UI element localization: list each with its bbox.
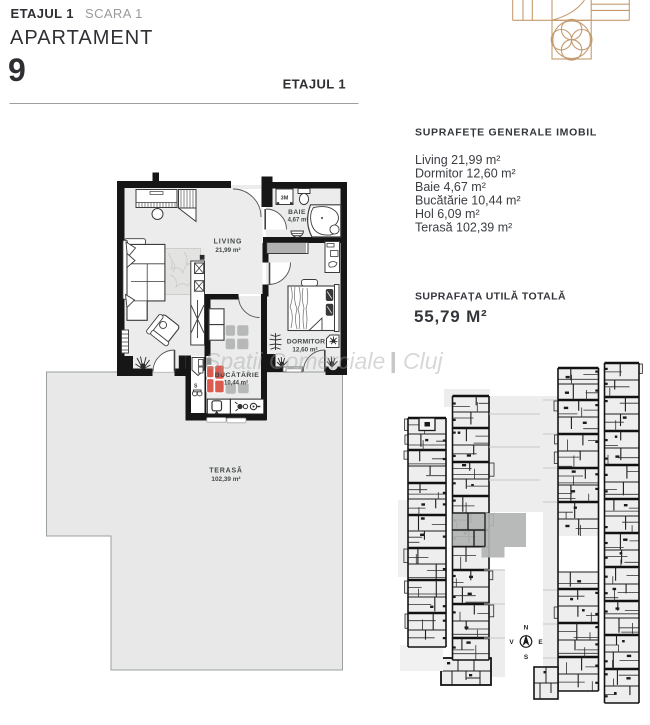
svg-text:Spații Comerciale: Spații Comerciale: [205, 348, 385, 374]
svg-text:ETAJUL 1: ETAJUL 1: [283, 77, 346, 92]
svg-text:SCARA 1: SCARA 1: [85, 6, 143, 21]
svg-text:Hol 6,09 m²: Hol 6,09 m²: [415, 207, 480, 221]
svg-text:9: 9: [8, 52, 26, 88]
svg-text:10,44 m²: 10,44 m²: [224, 379, 248, 386]
svg-text:APARTAMENT: APARTAMENT: [10, 27, 153, 49]
svg-text:SUPRAFAȚA UTILĂ TOTALĂ: SUPRAFAȚA UTILĂ TOTALĂ: [415, 290, 566, 303]
svg-text:LIVING: LIVING: [214, 239, 243, 246]
svg-text:V: V: [509, 639, 514, 646]
svg-text:21,99 m²: 21,99 m²: [215, 247, 240, 254]
svg-text:Living 21,99 m²: Living 21,99 m²: [415, 153, 500, 167]
svg-text:Bucătărie 10,44 m²: Bucătărie 10,44 m²: [415, 194, 521, 208]
svg-text:102,39 m²: 102,39 m²: [211, 476, 240, 483]
svg-text:Dormitor 12,60 m²: Dormitor 12,60 m²: [415, 167, 516, 181]
svg-text:SUPRAFEȚE GENERALE IMOBIL: SUPRAFEȚE GENERALE IMOBIL: [415, 127, 597, 139]
svg-text:3M: 3M: [281, 196, 289, 202]
svg-text:4,67 m²: 4,67 m²: [288, 217, 309, 224]
svg-text:Baie 4,67 m²: Baie 4,67 m²: [415, 180, 486, 194]
svg-text:Terasă 102,39 m²: Terasă 102,39 m²: [415, 221, 512, 235]
svg-text:N: N: [524, 625, 529, 632]
svg-text:BAIE: BAIE: [288, 209, 306, 216]
svg-text:TERASĂ: TERASĂ: [209, 466, 243, 475]
svg-text:ETAJUL 1: ETAJUL 1: [11, 6, 74, 21]
svg-text:55,79 M²: 55,79 M²: [414, 307, 488, 326]
svg-text:Cluj: Cluj: [403, 348, 444, 374]
svg-text:S: S: [524, 654, 529, 661]
svg-text:DORMITOR: DORMITOR: [287, 339, 325, 346]
svg-text:E: E: [538, 639, 543, 646]
